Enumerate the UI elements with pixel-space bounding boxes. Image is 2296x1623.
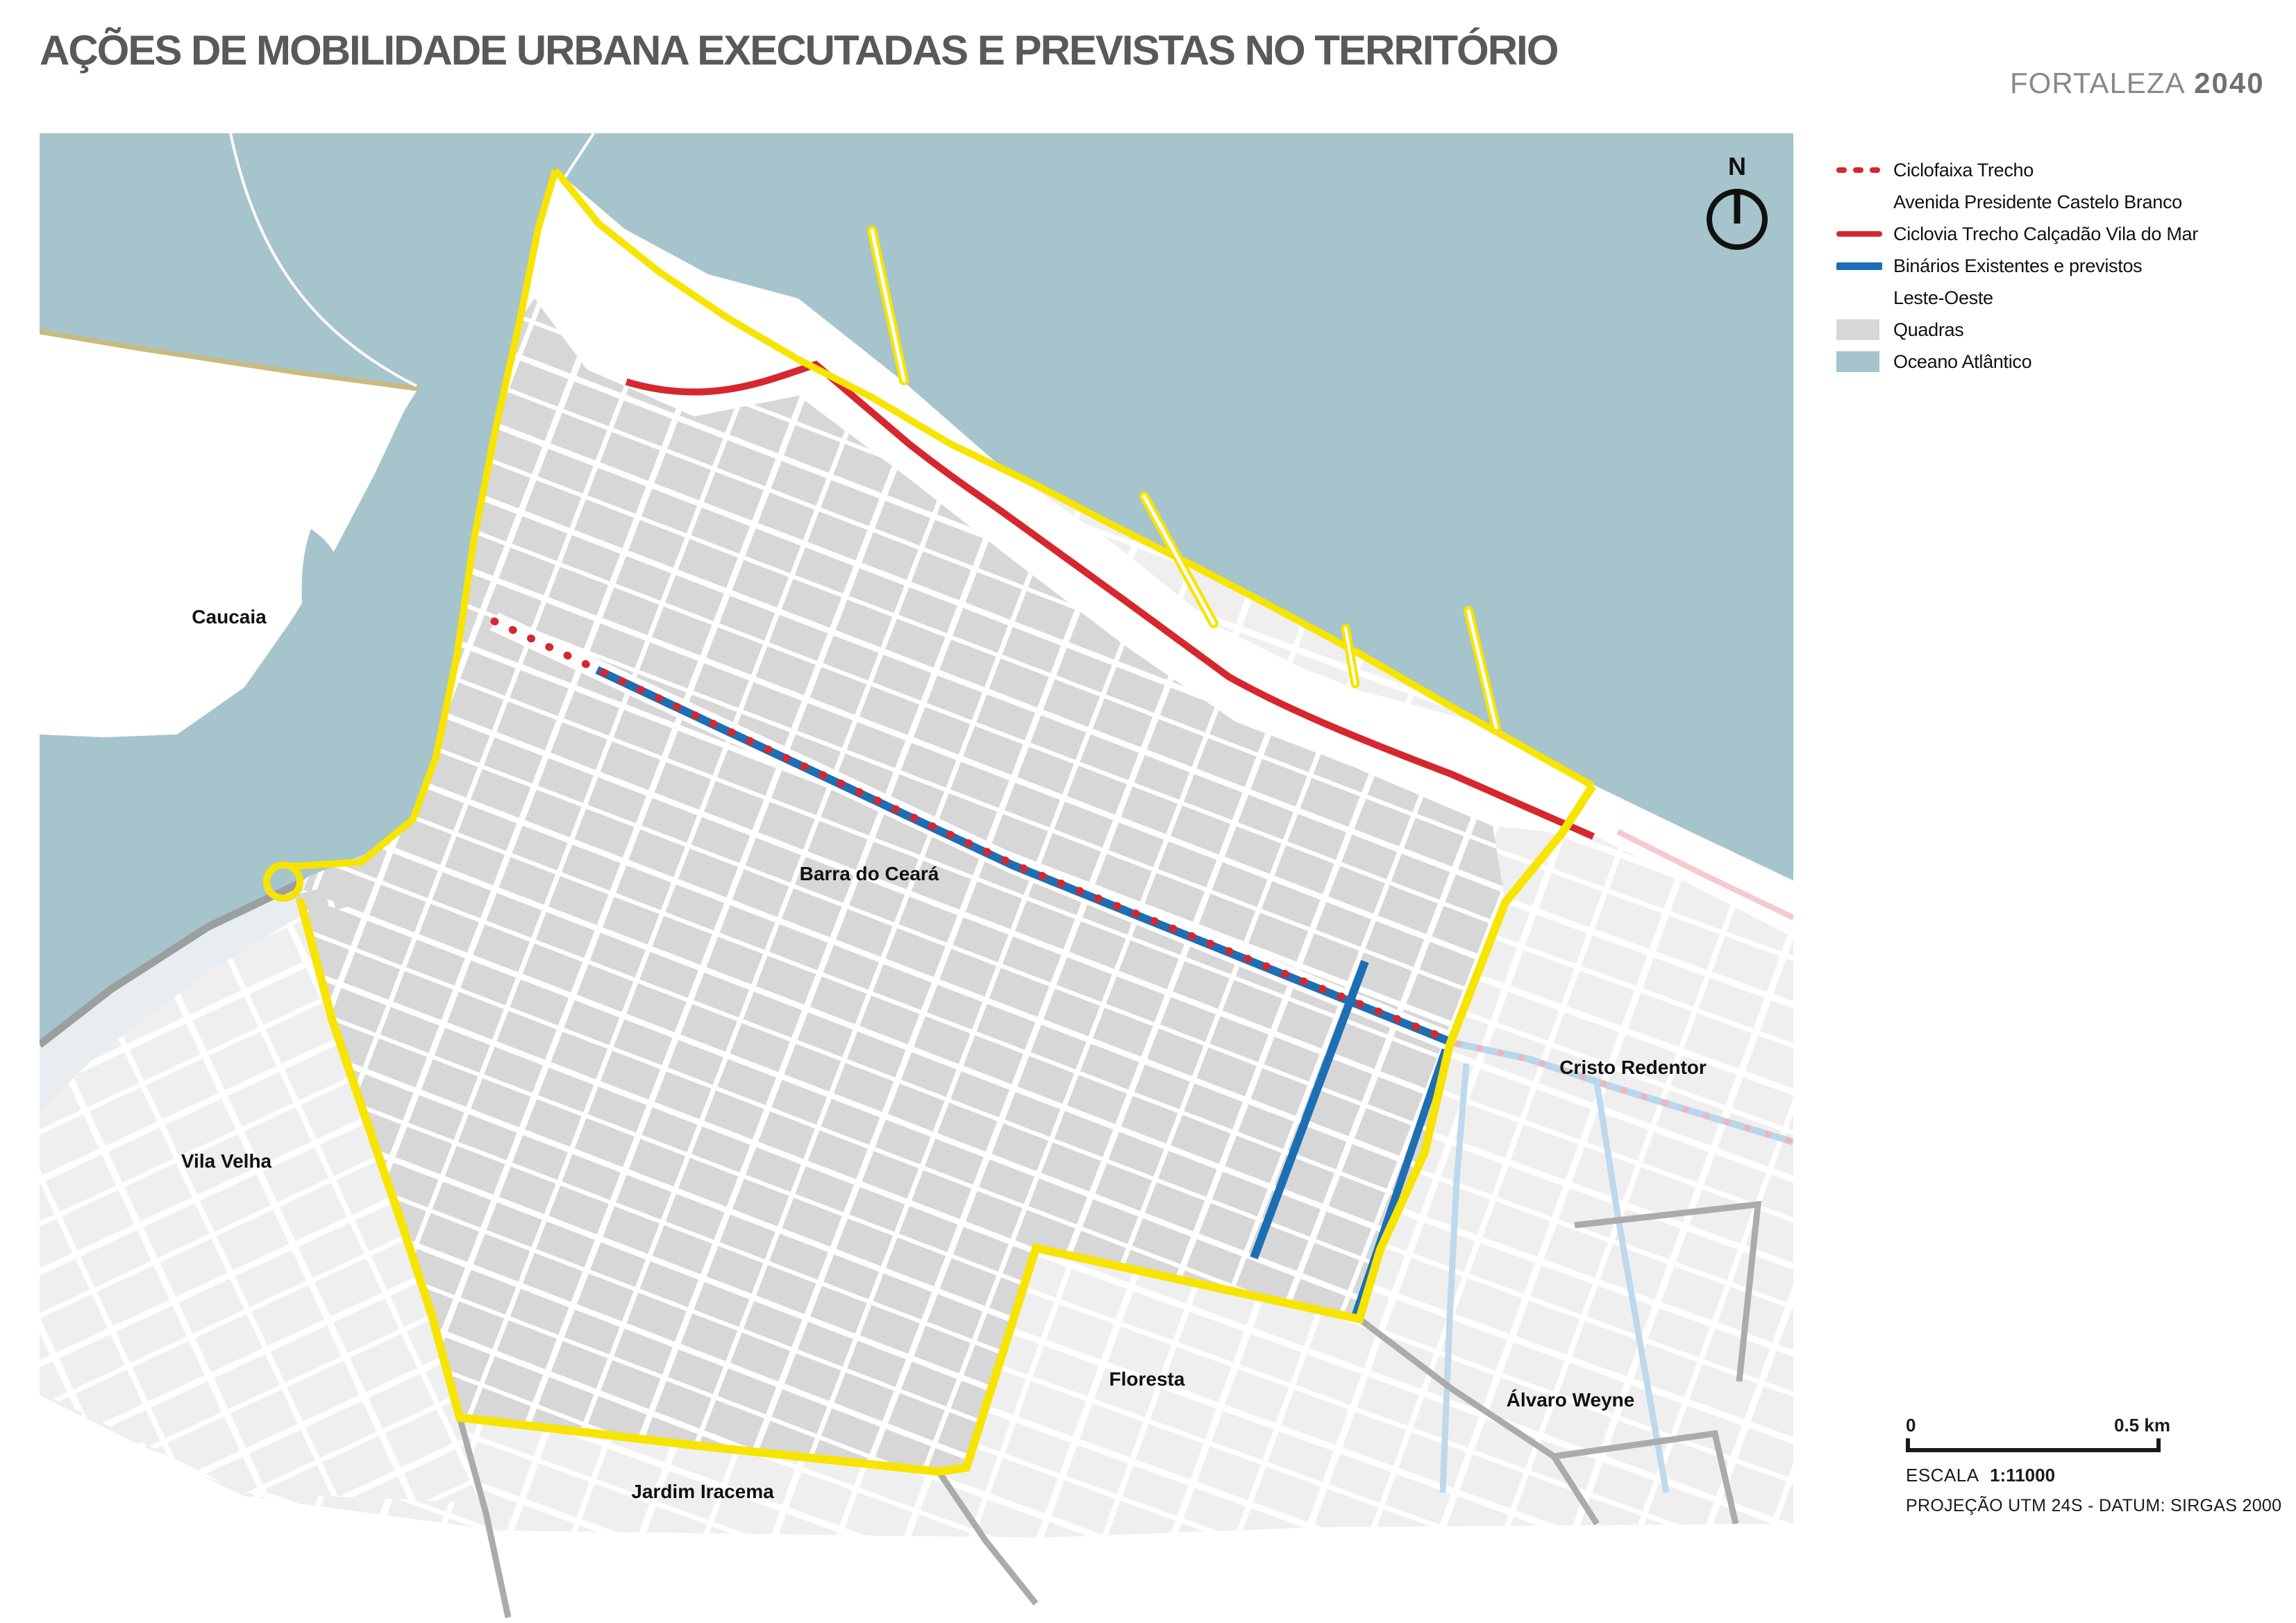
legend-label: Quadras	[1893, 319, 1963, 341]
scale-bar-rule	[1906, 1438, 2161, 1452]
legend-label: Leste-Oeste	[1893, 287, 1993, 309]
legend: Ciclofaixa Trecho Avenida Presidente Cas…	[1836, 154, 2281, 378]
legend-item-binarios-line2: Leste-Oeste	[1836, 282, 2281, 314]
solid-blue-line-swatch	[1836, 262, 1882, 270]
quadras-swatch	[1836, 319, 1879, 340]
label-cristo-redentor: Cristo Redentor	[1559, 1057, 1707, 1078]
legend-label: Ciclovia Trecho Calçadão Vila do Mar	[1893, 224, 2198, 245]
scale-start-value: 0	[1906, 1415, 1916, 1436]
legend-item-ciclovia: Ciclovia Trecho Calçadão Vila do Mar	[1836, 218, 2281, 250]
label-alvaro-weyne: Álvaro Weyne	[1507, 1389, 1635, 1411]
map-page: N Caucaia Vila Velha Barra do Ceará Cris…	[0, 0, 2296, 1623]
label-vila-velha: Vila Velha	[181, 1150, 272, 1172]
label-barra-do-ceara: Barra do Ceará	[800, 863, 939, 884]
legend-label: Avenida Presidente Castelo Branco	[1893, 192, 2182, 213]
label-floresta: Floresta	[1109, 1368, 1185, 1390]
fortaleza-2040-logo: FORTALEZA 2040	[2010, 67, 2265, 100]
legend-label: Oceano Atlântico	[1893, 351, 2031, 373]
legend-item-binarios: Binários Existentes e previstos	[1836, 250, 2281, 282]
legend-label: Ciclofaixa Trecho	[1893, 160, 2034, 181]
escala-value: 1:11000	[1990, 1465, 2055, 1486]
solid-red-line-swatch	[1836, 231, 1882, 237]
compass-north-label: N	[1728, 152, 1746, 180]
projection-note: PROJEÇÃO UTM 24S - DATUM: SIRGAS 2000	[1906, 1496, 2197, 1516]
dashed-red-line-swatch	[1836, 167, 1882, 173]
legend-item-ciclofaixa: Ciclofaixa Trecho	[1836, 154, 2281, 186]
page-title: AÇÕES DE MOBILIDADE URBANA EXECUTADAS E …	[40, 26, 1557, 74]
label-caucaia: Caucaia	[192, 606, 267, 628]
legend-item-ciclofaixa-line2: Avenida Presidente Castelo Branco	[1836, 186, 2281, 218]
logo-brand: FORTALEZA	[2010, 67, 2186, 99]
scale-end-value: 0.5 km	[2114, 1415, 2170, 1436]
legend-item-oceano: Oceano Atlântico	[1836, 346, 2281, 378]
legend-item-quadras: Quadras	[1836, 314, 2281, 346]
scale-bar: 0 0.5 km ESCALA 1:11000 PROJEÇÃO UTM 24S…	[1906, 1415, 2197, 1516]
logo-year: 2040	[2194, 67, 2264, 99]
legend-label: Binários Existentes e previstos	[1893, 255, 2142, 277]
ocean-swatch	[1836, 351, 1879, 372]
escala-label: ESCALA	[1906, 1465, 1979, 1486]
label-jardim-iracema: Jardim Iracema	[631, 1481, 774, 1502]
